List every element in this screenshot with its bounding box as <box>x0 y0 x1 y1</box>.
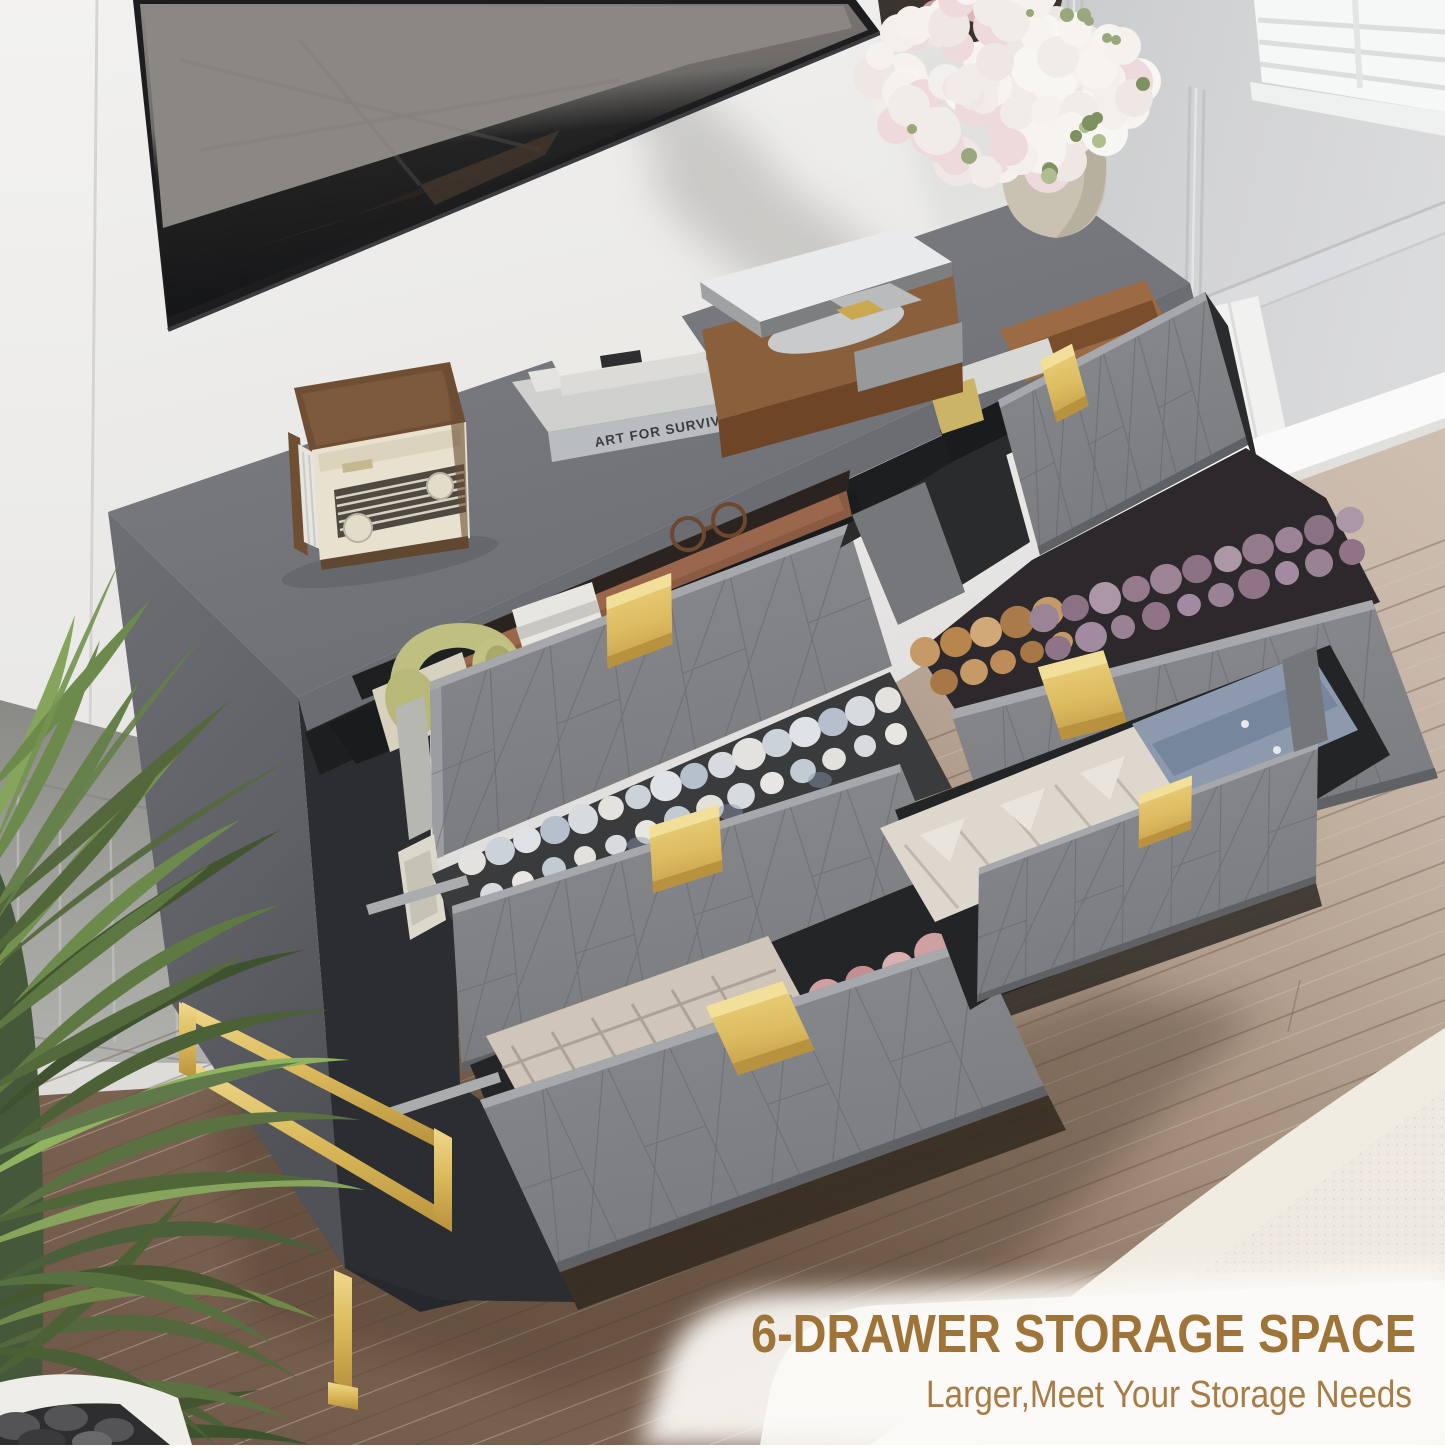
svg-text:6-DRAWER STORAGE SPACE: 6-DRAWER STORAGE SPACE <box>751 1304 1416 1364</box>
svg-text:Larger,Meet Your Storage Needs: Larger,Meet Your Storage Needs <box>926 1374 1412 1416</box>
